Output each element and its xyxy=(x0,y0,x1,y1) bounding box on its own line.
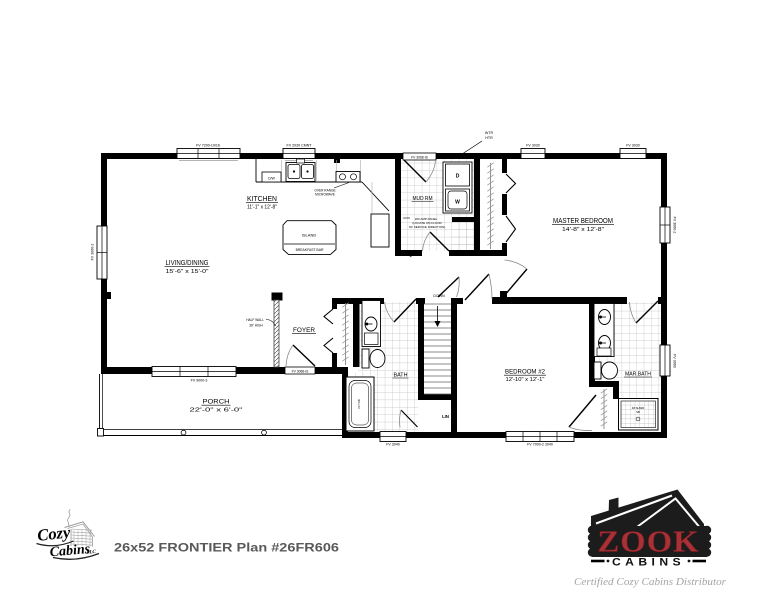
svg-text:FV 3040: FV 3040 xyxy=(386,443,400,447)
svg-text:CABINS: CABINS xyxy=(612,557,685,569)
svg-text:MASTER BEDROOM: MASTER BEDROOM xyxy=(553,218,613,225)
svg-text:MICROWAVE: MICROWAVE xyxy=(315,193,335,197)
svg-text:BREAKFAST BAR: BREAKFAST BAR xyxy=(296,248,324,252)
svg-text:FV 7200-19/16: FV 7200-19/16 xyxy=(196,144,220,148)
svg-text:HTR: HTR xyxy=(485,136,493,140)
svg-text:26x52 FRONTIER Plan #26FR606: 26x52 FRONTIER Plan #26FR606 xyxy=(114,541,339,555)
svg-text:W: W xyxy=(455,200,460,206)
svg-text:DOWN: DOWN xyxy=(433,294,445,298)
svg-text:FV 3030: FV 3030 xyxy=(626,144,640,148)
svg-text:FV 9000-3: FV 9000-3 xyxy=(191,379,208,383)
svg-text:D: D xyxy=(456,174,460,180)
svg-text:HALF WALL: HALF WALL xyxy=(246,318,264,322)
svg-text:LIN: LIN xyxy=(442,414,449,419)
svg-text:LIVING/DINING: LIVING/DINING xyxy=(166,260,209,267)
svg-text:FV 3068-IS: FV 3068-IS xyxy=(411,155,428,159)
svg-text:MAR.BATH: MAR.BATH xyxy=(625,372,651,378)
svg-text:KITCHEN: KITCHEN xyxy=(247,196,277,203)
svg-text:14'-8" x 12'-8": 14'-8" x 12'-8" xyxy=(562,227,604,233)
svg-text:FV 3060: FV 3060 xyxy=(673,354,677,368)
svg-text:FOYER: FOYER xyxy=(293,327,315,334)
svg-text:FV 3030: FV 3030 xyxy=(526,144,540,148)
svg-text:FV 3060-2: FV 3060-2 xyxy=(91,244,95,261)
svg-text:SB: SB xyxy=(636,410,640,414)
svg-text:PORCH: PORCH xyxy=(203,400,230,406)
svg-text:ISLAND: ISLAND xyxy=(302,233,317,238)
svg-text:FV 3068-IS: FV 3068-IS xyxy=(292,369,309,373)
svg-text:Cozy: Cozy xyxy=(36,522,71,544)
svg-text:36" HIGH: 36" HIGH xyxy=(249,323,263,327)
svg-text:Certified Cozy Cabins Distribu: Certified Cozy Cabins Distributor xyxy=(574,577,726,588)
svg-text:FV 3060-2: FV 3060-2 xyxy=(673,217,677,234)
svg-text:ZOOK: ZOOK xyxy=(598,524,700,559)
svg-text:MUD RM: MUD RM xyxy=(413,196,433,202)
svg-text:BEDROOM #2: BEDROOM #2 xyxy=(505,369,545,376)
svg-text:12'-10" x 12'-1": 12'-10" x 12'-1" xyxy=(506,377,545,383)
svg-text:FV 2030 CMNT: FV 2030 CMNT xyxy=(287,144,313,148)
svg-text:11'-1" x 12'-8": 11'-1" x 12'-8" xyxy=(247,205,277,211)
svg-text:BATH: BATH xyxy=(394,373,408,379)
svg-text:60 TUB: 60 TUB xyxy=(357,399,361,409)
svg-text:15'-6" x 15'-0": 15'-6" x 15'-0" xyxy=(166,269,209,275)
svg-text:D/W: D/W xyxy=(268,176,275,180)
svg-text:22'-0" x 6'-0": 22'-0" x 6'-0" xyxy=(190,408,243,414)
svg-text:FV 7000-2 3040: FV 7000-2 3040 xyxy=(527,443,553,447)
svg-text:OF SERVICE DIRECTION): OF SERVICE DIRECTION) xyxy=(409,225,445,229)
svg-text:WTR: WTR xyxy=(485,131,494,135)
